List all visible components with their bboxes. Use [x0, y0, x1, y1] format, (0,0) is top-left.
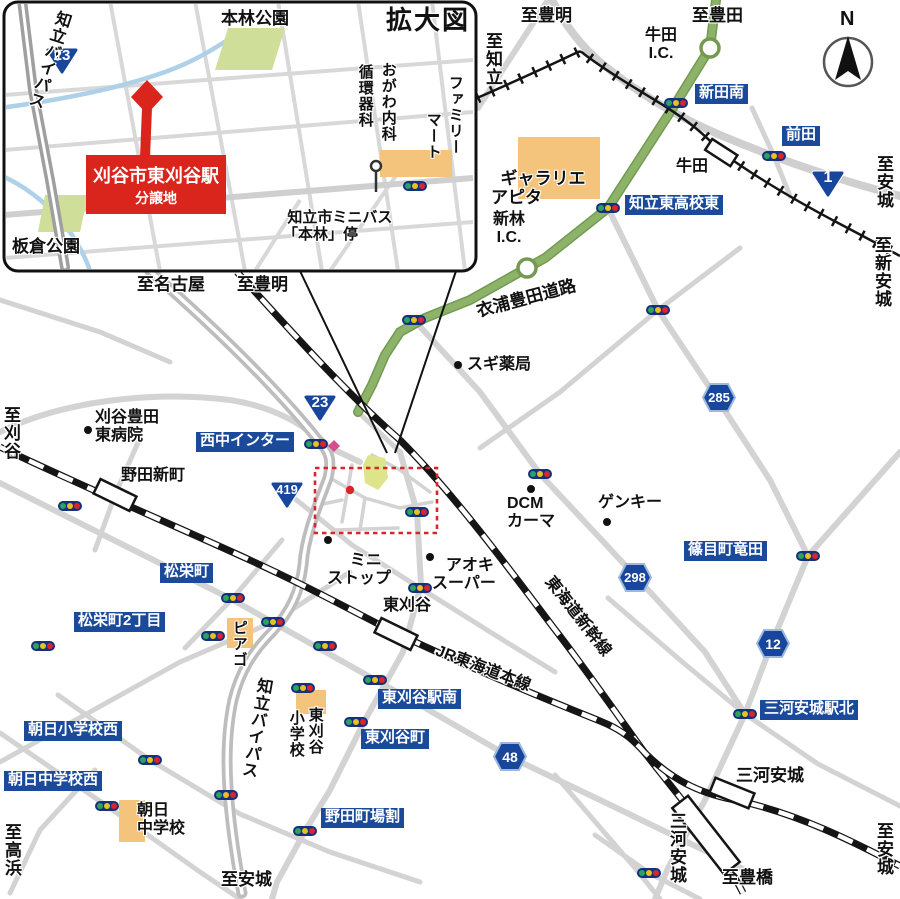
- mikawa-anjo-jr-label: 三河安城: [736, 766, 804, 785]
- to-anjo-ne-label: 至安城: [874, 155, 893, 209]
- higashi-kariya-eki-minami-badge: 東刈谷駅南: [378, 689, 461, 709]
- to-toyoake-top-label: 至豊明: [521, 6, 572, 25]
- famima-label-col1: ファミリー: [446, 75, 463, 155]
- gallerie-apita-label: ギャラリエアピタ: [491, 150, 585, 207]
- traffic-signal-icon: [304, 439, 328, 449]
- chiryu-higashi-koko-higashi-badge: 知立東高校東: [625, 195, 723, 215]
- inset-title: 拡大図: [386, 6, 470, 35]
- map-canvas: 23 23 419 1 285 298 12 48 拡大図 本林公園 板倉公園 …: [0, 0, 900, 899]
- traffic-signal-icon: [762, 151, 786, 161]
- poi-dot: [603, 518, 611, 526]
- asahi-chu-label: 朝日 中学校: [137, 802, 185, 838]
- maeda-badge: 前田: [782, 126, 820, 146]
- traffic-signal-icon: [221, 593, 245, 603]
- to-anjo-se-label: 至安城: [874, 822, 893, 876]
- higashi-kariya-station-label: 東刈谷: [383, 597, 431, 615]
- motobayashi-park-label: 本林公園: [221, 9, 289, 28]
- piago-label: ピアゴ: [230, 620, 247, 668]
- traffic-signal-icon: [796, 551, 820, 561]
- itakura-park-label: 板倉公園: [12, 237, 80, 256]
- higashi-kariya-cho-badge: 東刈谷町: [361, 729, 429, 749]
- route-shield-1: 1: [810, 165, 846, 199]
- to-nagoya-label: 至名古屋: [137, 275, 205, 294]
- dcm-kahma-label: DCM カーマ: [507, 495, 555, 531]
- poi-dot: [324, 536, 332, 544]
- ogawa-clinic-label-col1: おがわ内科: [379, 62, 396, 142]
- noda-cho-babari-badge: 野田町場割: [321, 808, 404, 828]
- shoei-cho-2-badge: 松栄町2丁目: [74, 612, 165, 632]
- shoei-cho-badge: 松栄町: [160, 563, 213, 583]
- ogawa-clinic-label-col2: 循環器科: [356, 64, 373, 128]
- asahi-sho-nishi-badge: 朝日小学校西: [24, 721, 122, 741]
- famima-label-col2: マート: [424, 112, 441, 160]
- sasame-cho-tatsuta-badge: 篠目町竜田: [684, 541, 767, 561]
- traffic-signal-icon: [646, 305, 670, 315]
- traffic-signal-icon: [637, 868, 661, 878]
- ushida-station-label: 牛田: [676, 158, 708, 176]
- traffic-signal-icon: [201, 631, 225, 641]
- poi-dot: [84, 426, 92, 434]
- traffic-signal-icon: [402, 315, 426, 325]
- poi-dot: [426, 553, 434, 561]
- pref-shield-12: 12: [754, 627, 792, 660]
- route-shield-419: 419: [269, 476, 305, 510]
- to-takahama-label: 至高浜: [2, 823, 21, 877]
- traffic-signal-icon: [95, 801, 119, 811]
- traffic-signal-icon: [261, 617, 285, 627]
- nishinaka-inter-badge: 西中インター: [196, 432, 294, 452]
- to-shin-anjo-label: 至新安城: [872, 236, 891, 308]
- noda-shinmachi-label: 野田新町: [121, 467, 185, 485]
- minibus-stop-label: 知立市ミニバス「本林」停: [279, 193, 392, 243]
- site-name-line2: 分譲地: [86, 188, 226, 208]
- traffic-signal-icon: [291, 683, 315, 693]
- traffic-signal-icon: [528, 469, 552, 479]
- poi-dot: [454, 361, 462, 369]
- hk-shogakko-label-col2: 小学校: [287, 710, 304, 758]
- aoki-super-label: アオキスーパー: [437, 539, 496, 593]
- traffic-signal-icon: [664, 98, 688, 108]
- site-name-box: 刈谷市東刈谷駅 分譲地: [86, 155, 226, 214]
- inset-map: [0, 0, 476, 271]
- mikawa-anjo-eki-kita-badge: 三河安城駅北: [760, 700, 858, 720]
- genky-label: ゲンキー: [598, 494, 662, 512]
- to-toyohashi-label: 至豊橋: [722, 868, 773, 887]
- pref-shield-48: 48: [491, 740, 529, 773]
- to-anjo-south-label: 至安城: [221, 870, 272, 889]
- kariya-toyota-hospital-label: 刈谷豊田 東病院: [95, 409, 159, 445]
- traffic-signal-icon: [293, 826, 317, 836]
- hk-shogakko-label-col1: 東刈谷: [306, 707, 323, 755]
- ushida-ic-label: 牛田 I.C.: [645, 27, 677, 63]
- traffic-signal-icon: [214, 790, 238, 800]
- traffic-signal-icon: [58, 501, 82, 511]
- mikawa-anjo-shinkansen-label: 三河安城: [667, 812, 686, 884]
- traffic-signal-icon: [138, 755, 162, 765]
- traffic-signal-icon: [733, 709, 757, 719]
- traffic-signal-icon: [344, 717, 368, 727]
- poi-dot: [527, 485, 535, 493]
- traffic-signal-icon: [31, 641, 55, 651]
- nitta-minami-badge: 新田南: [695, 84, 748, 104]
- pref-shield-298: 298: [616, 561, 654, 594]
- traffic-signal-icon: [596, 203, 620, 213]
- pref-shield-285: 285: [700, 381, 738, 414]
- compass-icon: [824, 36, 872, 86]
- to-chiryu-label: 至知立: [483, 32, 502, 86]
- to-toyota-label: 至豊田: [692, 6, 743, 25]
- to-kariya-label: 至刈谷: [1, 406, 20, 460]
- compass-n-label: N: [840, 8, 854, 30]
- traffic-signal-icon: [313, 641, 337, 651]
- traffic-signal-icon: [363, 675, 387, 685]
- site-name-line1: 刈谷市東刈谷駅: [86, 162, 226, 188]
- traffic-signal-icon: [403, 181, 427, 191]
- shinbayashi-ic-label: 新林 I.C.: [493, 211, 525, 247]
- route-shield-23: 23: [302, 389, 338, 423]
- traffic-signal-icon: [405, 507, 429, 517]
- ministop-label: ミニストップ: [341, 534, 391, 588]
- sugi-yakkyoku-label: スギ薬局: [467, 356, 531, 374]
- asahi-chu-nishi-badge: 朝日中学校西: [4, 771, 102, 791]
- traffic-signal-icon: [408, 583, 432, 593]
- to-toyoake-bottom-label: 至豊明: [237, 275, 288, 294]
